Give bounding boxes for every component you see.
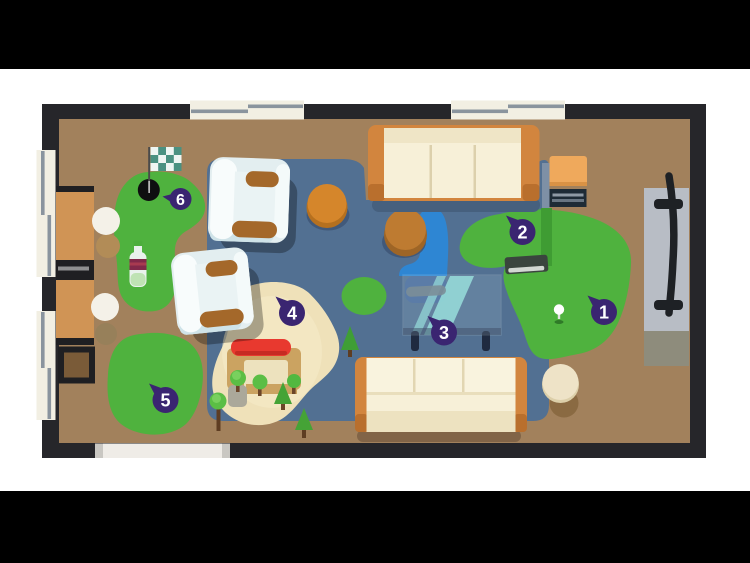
svg-text:1: 1 [599, 303, 609, 323]
svg-text:5: 5 [160, 391, 170, 411]
svg-text:3: 3 [439, 323, 449, 343]
svg-text:2: 2 [517, 223, 527, 243]
svg-text:4: 4 [287, 304, 297, 324]
svg-text:6: 6 [176, 192, 185, 209]
